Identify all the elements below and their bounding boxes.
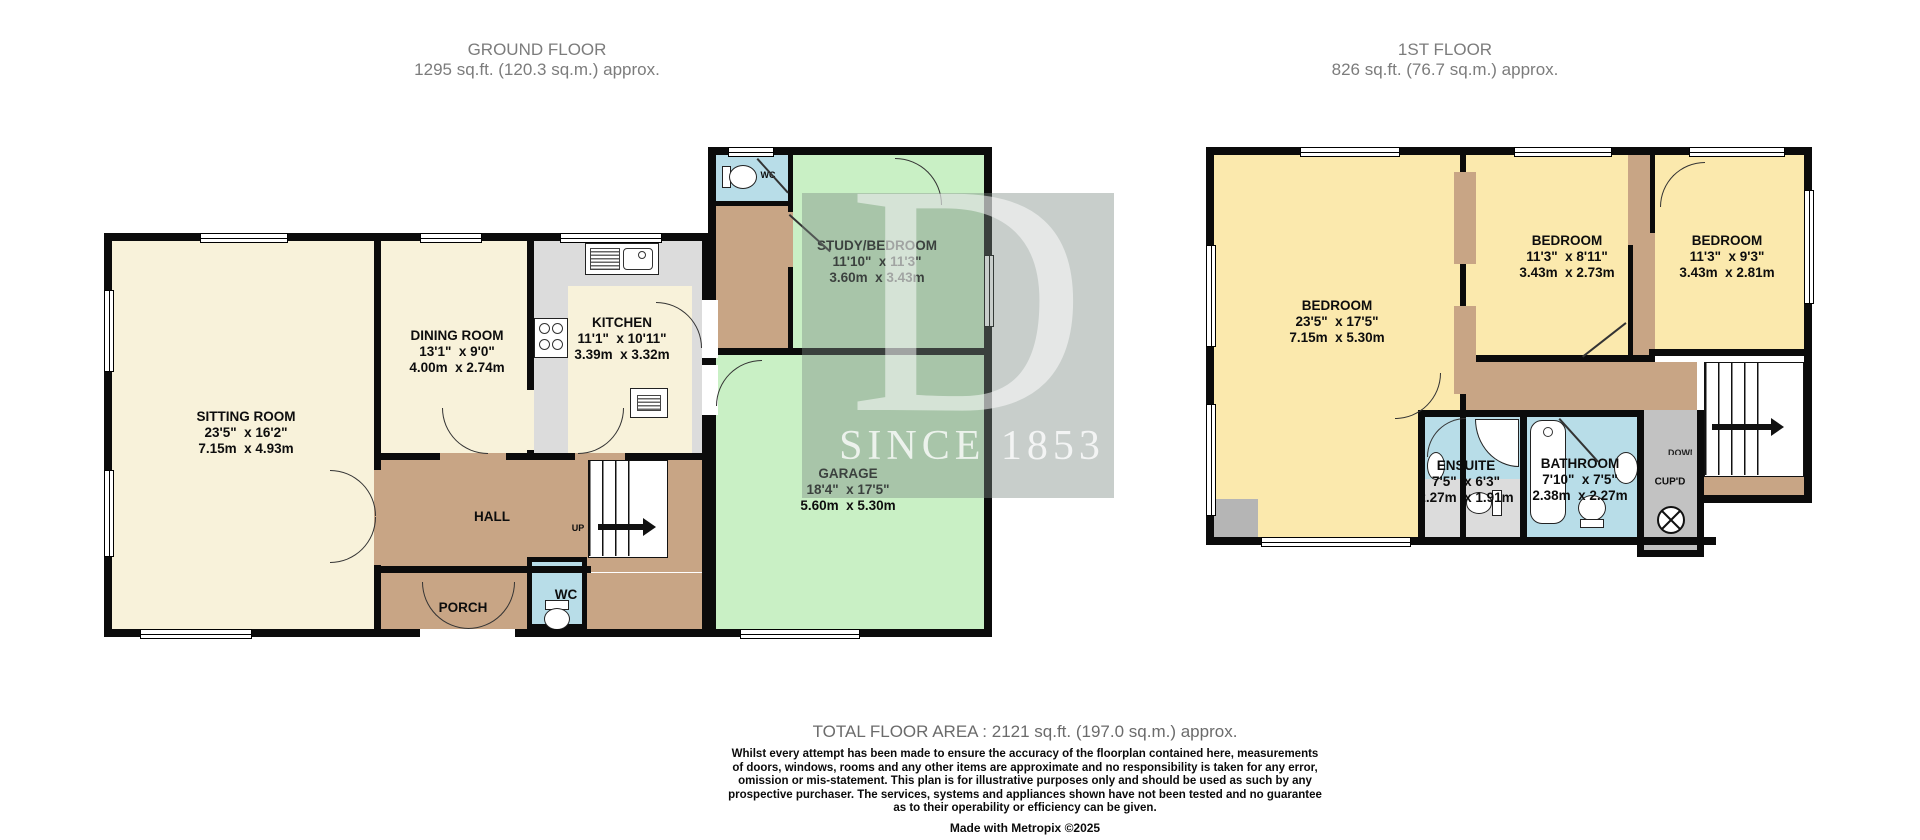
wall bbox=[381, 566, 591, 573]
bedroom3-label: BEDROOM11'3" x 9'3"3.43m x 2.81m bbox=[1679, 201, 1774, 313]
garage-lobby bbox=[716, 206, 793, 348]
door-opening bbox=[440, 453, 506, 460]
watermark-overlay: D SINCE 1853 bbox=[802, 193, 1114, 498]
wall bbox=[1520, 417, 1527, 537]
bedroom1-cupboard bbox=[1214, 499, 1258, 537]
wall bbox=[1697, 410, 1704, 557]
sink-basin-icon bbox=[623, 248, 653, 270]
window bbox=[740, 629, 860, 639]
watermark-caption: SINCE 1853 bbox=[816, 422, 1128, 470]
door-opening bbox=[575, 453, 625, 460]
window bbox=[420, 233, 482, 243]
window bbox=[1261, 537, 1411, 547]
window bbox=[104, 290, 114, 372]
stair-landing bbox=[1704, 477, 1804, 495]
wall bbox=[381, 453, 702, 460]
bedroom1-label: BEDROOM23'5" x 17'5"7.15m x 5.30m bbox=[1289, 266, 1384, 378]
sitting-room-label: SITTING ROOM23'5" x 16'2"7.15m x 4.93m bbox=[197, 377, 296, 489]
door-opening bbox=[702, 365, 718, 415]
down-arrow-icon bbox=[1712, 424, 1772, 430]
window bbox=[728, 147, 774, 157]
window bbox=[1206, 245, 1216, 347]
first-floor-area-text: 826 sq.ft. (76.7 sq.m.) approx. bbox=[1332, 60, 1559, 80]
wall bbox=[1637, 410, 1644, 557]
wall bbox=[1418, 410, 1425, 544]
window bbox=[560, 233, 662, 243]
hob-icon bbox=[534, 318, 568, 358]
total-floor-area: TOTAL FLOOR AREA : 2121 sq.ft. (197.0 sq… bbox=[813, 722, 1238, 742]
wall bbox=[1637, 550, 1704, 557]
toilet-icon bbox=[544, 608, 570, 630]
first-floor-title: 1ST FLOOR 826 sq.ft. (76.7 sq.m.) approx… bbox=[1332, 40, 1559, 80]
window bbox=[1514, 147, 1612, 157]
dining-room-label: DINING ROOM13'1" x 9'0"4.00m x 2.74m bbox=[409, 296, 504, 408]
window bbox=[1206, 404, 1216, 516]
drainer-icon bbox=[590, 248, 620, 270]
door-opening bbox=[1454, 306, 1476, 394]
up-arrow-icon bbox=[598, 524, 644, 530]
floorplan-canvas: GROUND FLOOR 1295 sq.ft. (120.3 sq.m.) a… bbox=[0, 0, 1920, 840]
wall bbox=[1697, 495, 1812, 503]
window bbox=[140, 629, 252, 639]
ground-floor-title: GROUND FLOOR 1295 sq.ft. (120.3 sq.m.) a… bbox=[414, 40, 660, 80]
door-opening bbox=[702, 300, 718, 358]
metropix-credit: Made with Metropix ©2025 bbox=[950, 821, 1100, 835]
wall bbox=[1649, 349, 1812, 356]
wall bbox=[1628, 245, 1633, 355]
ground-floor-area-text: 1295 sq.ft. (120.3 sq.m.) approx. bbox=[414, 60, 660, 80]
front-door-opening bbox=[420, 629, 515, 637]
door-opening bbox=[527, 390, 534, 450]
door-opening bbox=[788, 212, 793, 267]
wall bbox=[1650, 155, 1655, 233]
circled-x-icon bbox=[1656, 505, 1686, 535]
watermark-letter: D bbox=[848, 135, 1086, 465]
wall bbox=[788, 155, 793, 206]
disclaimer-text: Whilst every attempt has been made to en… bbox=[675, 748, 1375, 816]
door-opening bbox=[1454, 172, 1476, 264]
staircase-down bbox=[1704, 362, 1804, 477]
window bbox=[200, 233, 288, 243]
wall bbox=[1418, 410, 1644, 417]
window bbox=[1689, 147, 1785, 157]
ground-floor-title-text: GROUND FLOOR bbox=[414, 40, 660, 60]
window bbox=[104, 470, 114, 557]
wc-ground-label: WC bbox=[555, 587, 578, 603]
stair-treads bbox=[589, 461, 637, 556]
kitchen-sink-icon bbox=[585, 243, 659, 275]
stairs-down-label: DOWN bbox=[1668, 448, 1692, 455]
toilet-icon bbox=[729, 165, 757, 189]
wall bbox=[1460, 355, 1655, 362]
tap-icon bbox=[638, 251, 646, 259]
hall-corridor bbox=[587, 573, 702, 629]
stair-treads bbox=[1705, 363, 1763, 475]
landing bbox=[1466, 362, 1697, 410]
window bbox=[1300, 147, 1400, 157]
bedroom2-label: BEDROOM11'3" x 8'11"3.43m x 2.73m bbox=[1519, 201, 1614, 313]
window bbox=[1804, 190, 1814, 304]
first-floor-title-text: 1ST FLOOR bbox=[1332, 40, 1559, 60]
wall bbox=[716, 201, 790, 206]
staircase-up bbox=[588, 460, 668, 558]
wall bbox=[374, 241, 381, 629]
stairs-up-label: UP bbox=[572, 523, 585, 533]
cupboard-label: CUP'D bbox=[1655, 477, 1686, 488]
hall-label: HALL bbox=[474, 509, 510, 525]
